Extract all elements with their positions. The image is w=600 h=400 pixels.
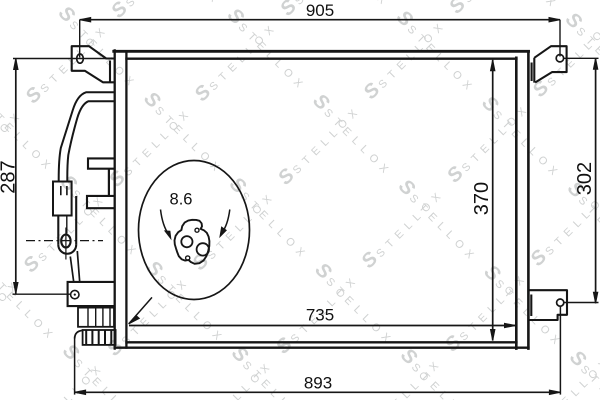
svg-text:302: 302: [574, 162, 596, 195]
svg-text:8.6: 8.6: [170, 190, 193, 208]
svg-text:893: 893: [304, 373, 332, 392]
svg-text:287: 287: [0, 160, 20, 193]
svg-text:735: 735: [306, 305, 334, 324]
svg-text:905: 905: [306, 1, 334, 20]
svg-text:370: 370: [471, 182, 493, 215]
